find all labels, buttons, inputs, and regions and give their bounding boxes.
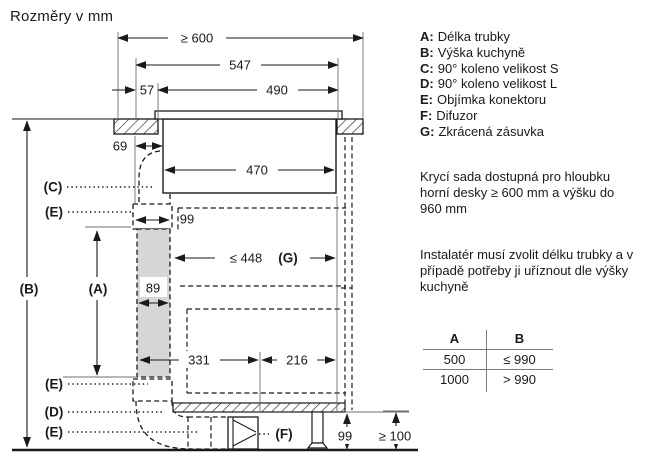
legend-key: A: (420, 29, 434, 44)
label-a: (A) (89, 282, 108, 297)
legend-item-e: E:Objímka konektoru (420, 92, 668, 108)
dimension-lines (27, 38, 396, 449)
table-header-a: A (423, 331, 486, 346)
legend-label: 90° koleno velikost S (438, 61, 559, 76)
dim-cutout-490: 490 (266, 83, 288, 98)
dim-drawer-448: ≤ 448 (230, 251, 262, 266)
dimensions-page: Rozměry v mm (0, 0, 671, 468)
label-e-bottom: (E) (45, 425, 63, 440)
legend-label: Objímka konektoru (437, 92, 546, 107)
table-header-row: A B (423, 327, 553, 349)
dim-offset-57: 57 (140, 83, 154, 98)
legend-key: B: (420, 45, 434, 60)
legend-key: E: (420, 92, 433, 107)
table-cell: > 990 (486, 372, 553, 387)
table-header-b: B (486, 331, 553, 346)
legend-label: Délka trubky (438, 29, 510, 44)
table-row: 500 ≤ 990 (423, 349, 553, 369)
legend-label: Difuzor (436, 108, 477, 123)
table-cell: 500 (423, 352, 486, 367)
plinth-strip (173, 403, 345, 412)
connector-top (133, 204, 172, 229)
legend: A:Délka trubky B:Výška kuchyně C:90° kol… (420, 29, 668, 140)
connector-bottom (133, 379, 172, 401)
table-cell: ≤ 990 (486, 352, 553, 367)
legend-item-b: B:Výška kuchyně (420, 45, 668, 61)
dim-drawer-448-key: (G) (278, 251, 298, 266)
legend-item-c: C:90° koleno velikost S (420, 61, 668, 77)
label-c: (C) (44, 180, 63, 195)
legend-key: D: (420, 76, 434, 91)
legend-label: 90° koleno velikost L (438, 76, 557, 91)
text-backgrounds (13, 29, 420, 444)
legend-item-d: D:90° koleno velikost L (420, 76, 668, 92)
table-cell: 1000 (423, 372, 486, 387)
dim-clearance-100: ≥ 100 (379, 429, 411, 444)
legend-label: Zkrácená zásuvka (438, 124, 544, 139)
legend-item-g: G:Zkrácená zásuvka (420, 124, 668, 140)
table-row: 1000 > 990 (423, 369, 553, 389)
label-e-top: (E) (45, 205, 63, 220)
table-divider (486, 330, 487, 392)
dim-right-216: 216 (286, 353, 308, 368)
legend-key: G: (420, 124, 434, 139)
dim-connector-99: 99 (180, 212, 194, 227)
note-cover-kit: Krycí sada dostupná pro hloubku horní de… (420, 169, 636, 217)
hob-body (163, 119, 336, 193)
label-d: (D) (45, 405, 64, 420)
label-b: (B) (20, 282, 39, 297)
note-installer: Instalatér musí zvolit délku trubky a v … (420, 247, 636, 295)
extension-lines (63, 32, 409, 412)
installation-diagram: ≥ 600 547 57 490 69 470 99 89 ≤ 448 (G) … (0, 0, 420, 468)
label-e-mid: (E) (45, 377, 63, 392)
table-line (423, 369, 553, 370)
dim-plate-547: 547 (229, 58, 251, 73)
dim-depth-600: ≥ 600 (181, 31, 213, 46)
table-line (423, 349, 553, 350)
legend-label: Výška kuchyně (438, 45, 525, 60)
diffuser (188, 417, 258, 449)
dim-duct-offset-69: 69 (113, 139, 127, 154)
cabinet-leg (308, 412, 327, 448)
dim-plinth-99: 99 (338, 429, 352, 444)
label-f: (F) (275, 427, 292, 442)
legend-key: F: (420, 108, 432, 123)
legend-key: C: (420, 61, 434, 76)
dim-duct-89: 89 (146, 281, 160, 296)
legend-item-a: A:Délka trubky (420, 29, 668, 45)
pipe-length-table: A B 500 ≤ 990 1000 > 990 (423, 327, 553, 389)
dim-left-331: 331 (188, 353, 210, 368)
dim-hob-470: 470 (246, 163, 268, 178)
legend-item-f: F:Difuzor (420, 108, 668, 124)
hob-plate (155, 111, 342, 119)
